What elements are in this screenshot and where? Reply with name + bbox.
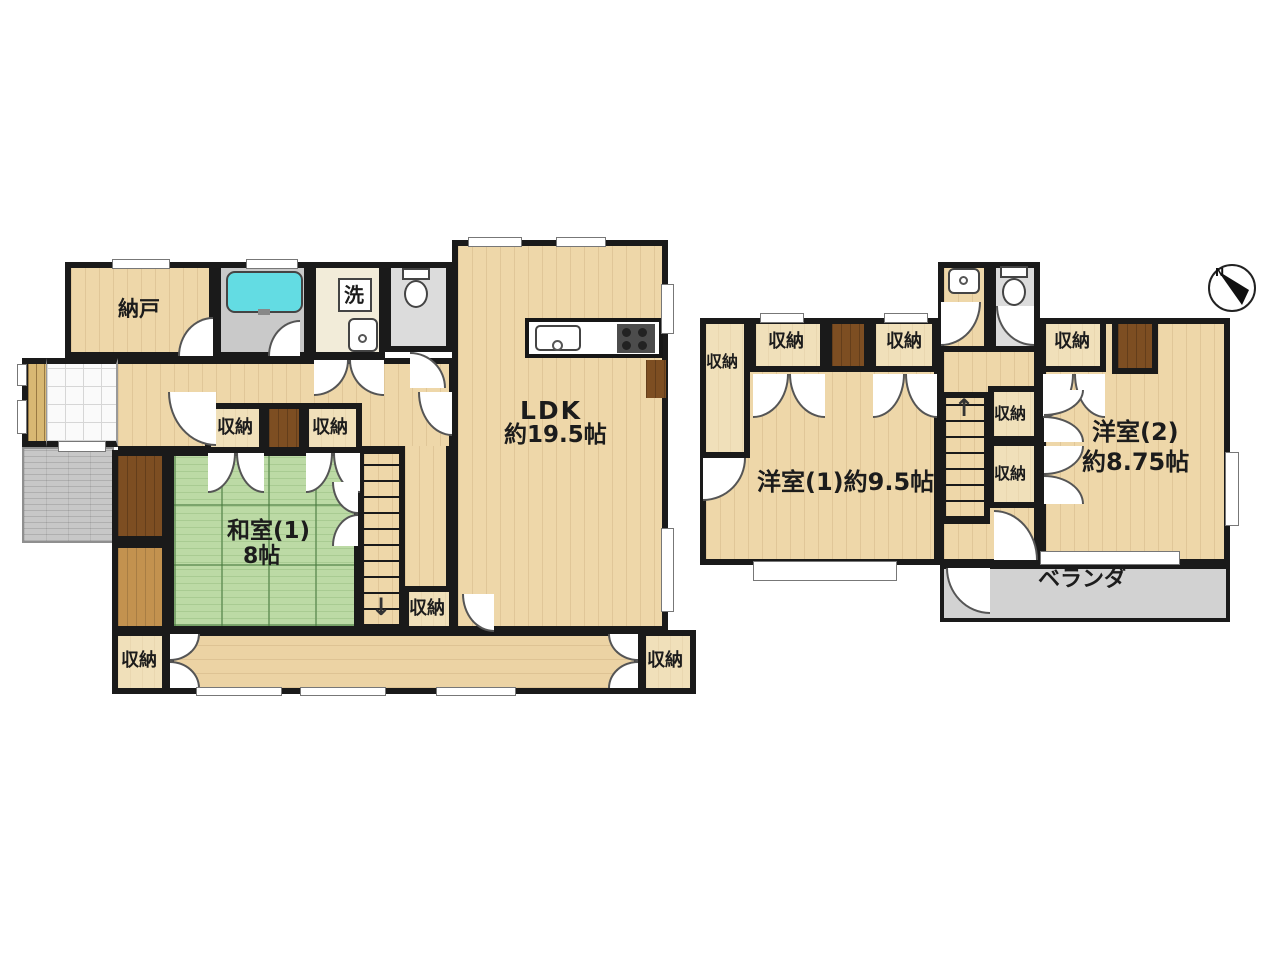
toilet-2f-bowl-icon — [1002, 278, 1026, 306]
window — [661, 284, 674, 334]
window — [468, 237, 522, 247]
window — [17, 364, 27, 386]
tokonoma-light — [112, 542, 168, 632]
window — [884, 313, 928, 323]
window — [196, 687, 282, 696]
bathtub-faucet-icon — [258, 309, 270, 315]
label-yoshitsu2-size: 約8.75帖 — [1082, 450, 1189, 474]
bathtub — [226, 271, 303, 313]
label-ldk: LDK — [520, 398, 582, 423]
label-nando: 納戸 — [118, 299, 160, 320]
compass: N — [1206, 262, 1258, 314]
tokonoma-dark — [112, 450, 168, 542]
compass-north-label: N — [1215, 266, 1224, 279]
stove-burner-icon — [638, 341, 647, 350]
window — [1225, 452, 1239, 526]
compass-icon: N — [1206, 262, 1258, 314]
stove-burner-icon — [622, 328, 631, 337]
label-closet: 収納 — [994, 406, 1026, 422]
south-corridor — [168, 630, 640, 694]
toilet-2f-tank-icon — [1000, 266, 1028, 278]
closet-2f-far-left — [700, 318, 750, 458]
alcove-2f-dark-left — [826, 318, 870, 372]
label-washitsu-size: 8帖 — [243, 546, 280, 568]
genkan-tile — [46, 358, 118, 447]
stairs-down-arrow: ↓ — [371, 595, 391, 619]
window — [1040, 551, 1180, 565]
window — [300, 687, 386, 696]
kitchen-faucet-icon — [552, 340, 563, 351]
stove-burner-icon — [622, 341, 631, 350]
entrance-door-opening — [58, 441, 106, 452]
label-laundry: 洗 — [344, 285, 364, 305]
toilet-1f-tank-icon — [402, 268, 430, 280]
window — [17, 400, 27, 434]
alcove-2f-dark-right — [1112, 318, 1158, 374]
outdoor-porch — [22, 447, 114, 543]
label-closet: 収納 — [1054, 333, 1090, 351]
window — [436, 687, 516, 696]
label-closet: 収納 — [768, 333, 804, 351]
window — [246, 259, 298, 269]
stairs-up-arrow: ↑ — [954, 396, 974, 420]
label-closet: 収納 — [217, 419, 253, 437]
label-closet: 収納 — [312, 419, 348, 437]
label-closet: 収納 — [409, 600, 445, 618]
label-closet: 収納 — [994, 466, 1026, 482]
floor-plan-canvas: ↓ — [0, 0, 1280, 960]
label-washitsu: 和室(1) — [227, 520, 310, 543]
label-yoshitsu2: 洋室(2) — [1092, 420, 1179, 444]
stove-burner-icon — [638, 328, 647, 337]
toilet-1f-bowl-icon — [404, 280, 428, 308]
window — [661, 528, 674, 612]
washbasin-1f-drain-icon — [358, 334, 367, 343]
washbasin-2f-drain-icon — [959, 276, 968, 285]
label-closet: 収納 — [647, 652, 683, 670]
label-veranda: ベランダ — [1038, 569, 1126, 591]
label-closet: 収納 — [706, 354, 738, 370]
label-ldk-size: 約19.5帖 — [504, 424, 607, 447]
label-yoshitsu1: 洋室(1)約9.5帖 — [757, 470, 934, 494]
window — [753, 561, 897, 581]
alcove-dark-wood — [263, 403, 305, 453]
window — [112, 259, 170, 269]
label-closet: 収納 — [121, 652, 157, 670]
window — [760, 313, 804, 323]
counter-side-panel — [646, 360, 666, 398]
label-closet: 収納 — [886, 333, 922, 351]
window — [556, 237, 606, 247]
